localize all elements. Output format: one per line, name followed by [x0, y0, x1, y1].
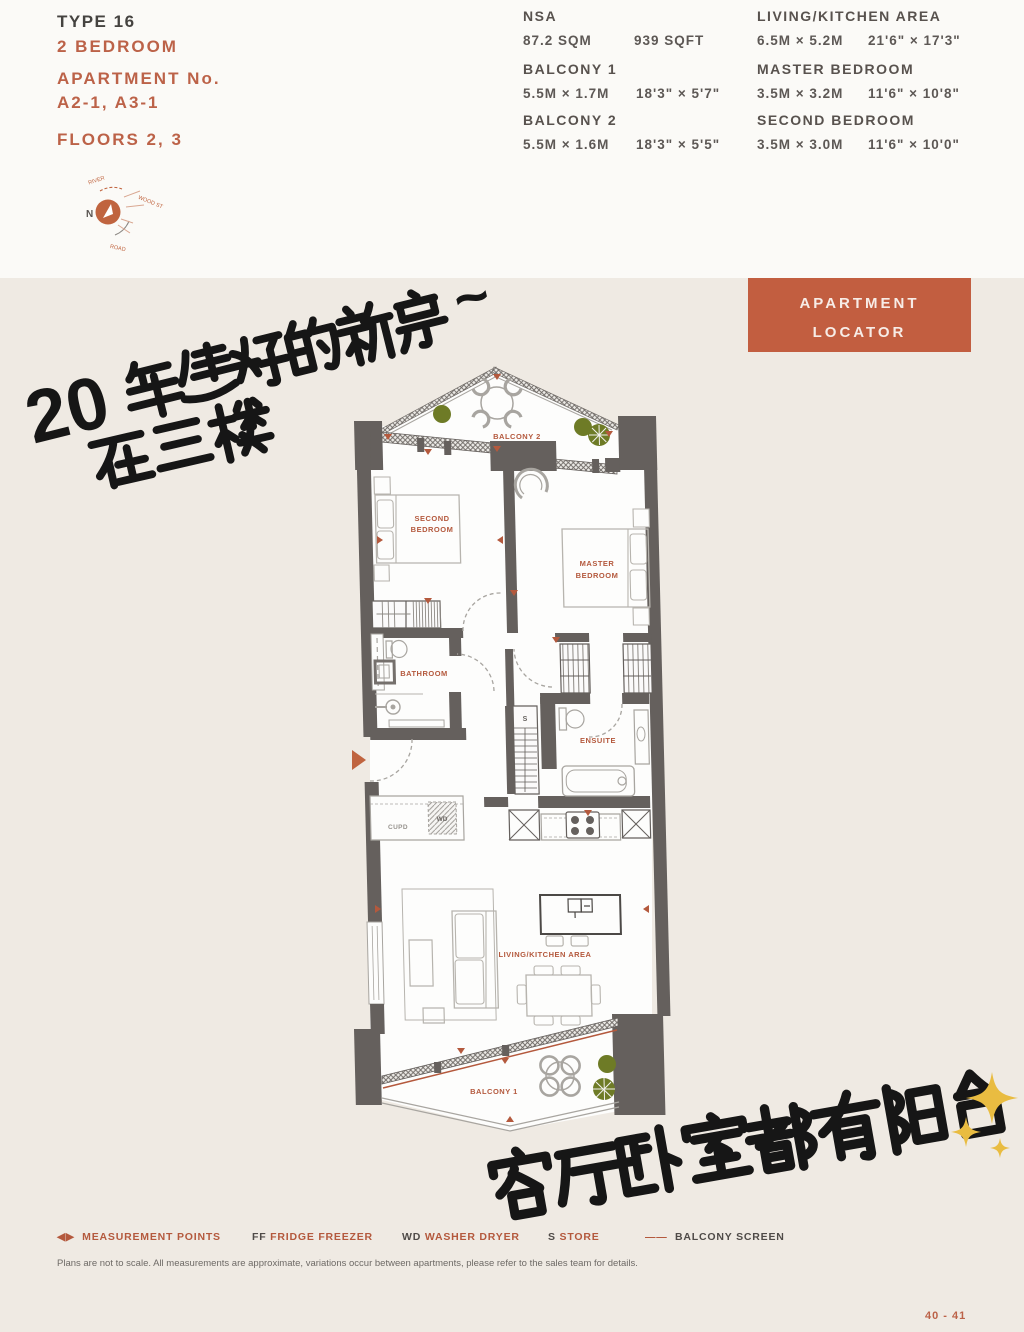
svg-text:MASTER: MASTER [580, 559, 615, 568]
svg-text:BATHROOM: BATHROOM [400, 669, 448, 678]
svg-text:ROAD: ROAD [109, 244, 126, 253]
svg-text:ENSUITE: ENSUITE [580, 736, 616, 745]
svg-text:WD: WD [437, 816, 448, 823]
svg-text:~: ~ [446, 260, 496, 333]
svg-text:S: S [523, 716, 528, 723]
svg-text:SECOND: SECOND [414, 514, 449, 523]
svg-text:BEDROOM: BEDROOM [411, 525, 454, 534]
svg-text:RIVER: RIVER [88, 175, 106, 186]
svg-text:LIVING/KITCHEN AREA: LIVING/KITCHEN AREA [499, 950, 592, 959]
svg-text:WOOD ST: WOOD ST [137, 195, 164, 211]
svg-text:CUPD: CUPD [388, 824, 408, 831]
svg-text:BEDROOM: BEDROOM [576, 571, 619, 580]
svg-text:N: N [86, 209, 93, 220]
